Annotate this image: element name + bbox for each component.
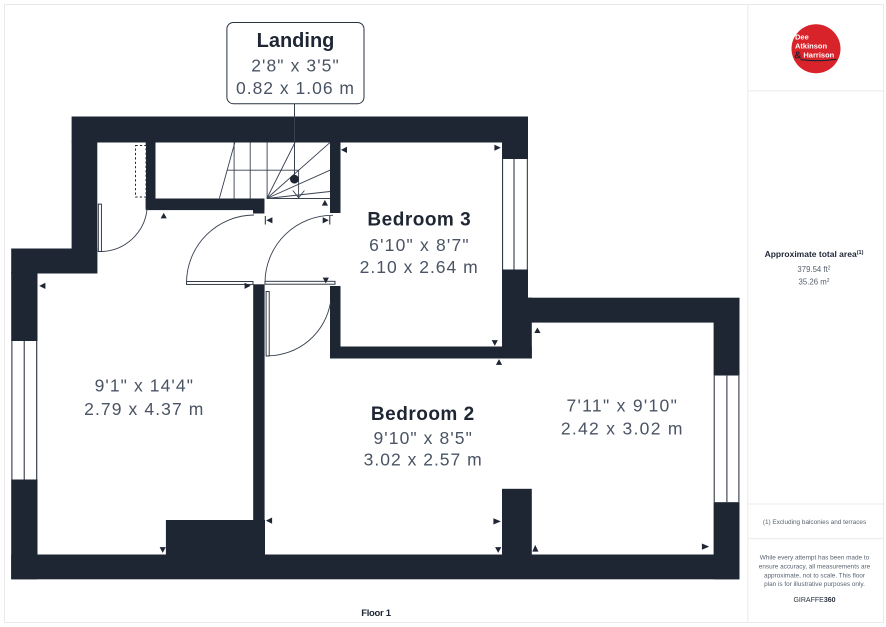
svg-text:2.79 x 4.37 m: 2.79 x 4.37 m [84,399,204,419]
svg-text:Approximate total area(1): Approximate total area(1) [765,249,864,259]
svg-text:2.42 x 3.02 m: 2.42 x 3.02 m [561,419,684,439]
svg-text:approximate, not to scale. Thi: approximate, not to scale. This floor [764,572,866,579]
svg-text:(1) Excluding balconies and te: (1) Excluding balconies and terraces [763,519,866,526]
svg-text:3.02 x 2.57 m: 3.02 x 2.57 m [364,450,483,470]
svg-text:Atkinson: Atkinson [795,42,828,51]
svg-text:7'11" x 9'10": 7'11" x 9'10" [567,395,679,415]
svg-text:2'8" x 3'5": 2'8" x 3'5" [251,55,340,75]
svg-text:6'10" x 8'7": 6'10" x 8'7" [369,235,470,255]
svg-text:GIRAFFE360: GIRAFFE360 [793,597,835,604]
svg-text:Dee: Dee [795,32,809,41]
svg-text:Harrison: Harrison [803,50,834,59]
svg-text:9'10" x 8'5": 9'10" x 8'5" [373,428,472,448]
svg-text:While every attempt has been m: While every attempt has been made to [760,555,870,562]
svg-text:379.54 ft2: 379.54 ft2 [797,265,830,274]
svg-text:2.10 x 2.64 m: 2.10 x 2.64 m [360,257,479,277]
svg-text:0.82 x 1.06 m: 0.82 x 1.06 m [236,78,355,98]
svg-text:Bedroom 2: Bedroom 2 [371,404,475,425]
svg-text:Floor 1: Floor 1 [361,608,392,619]
svg-text:Landing: Landing [257,30,335,52]
svg-text:ensure accuracy, all measureme: ensure accuracy, all measurements are [759,564,871,571]
svg-text:9'1" x 14'4": 9'1" x 14'4" [95,375,194,395]
svg-text:35.26 m2: 35.26 m2 [799,277,830,286]
svg-text:Bedroom 3: Bedroom 3 [367,210,471,231]
svg-text:&: & [794,51,801,62]
svg-text:plan is for illustrative purpo: plan is for illustrative purposes only. [764,581,865,588]
